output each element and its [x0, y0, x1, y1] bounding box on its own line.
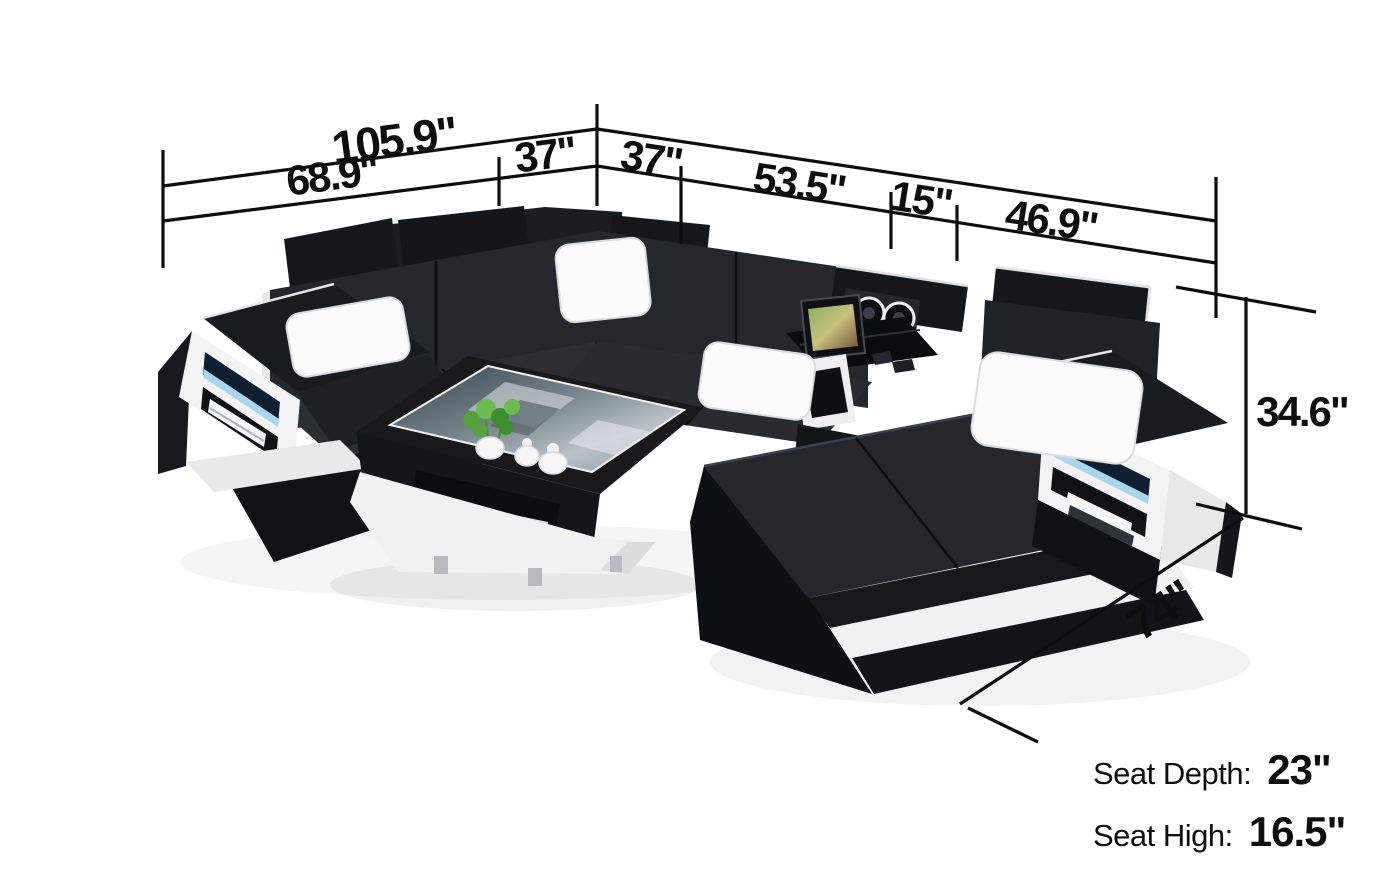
- seat-depth-row: Seat Depth: 23": [1093, 746, 1345, 794]
- seat-specs: Seat Depth: 23" Seat High: 16.5": [1093, 746, 1345, 870]
- pillow-right: [697, 341, 817, 422]
- tablet-screen: [808, 304, 858, 351]
- seat-depth-value: 23": [1267, 746, 1331, 794]
- dim-back-height-label: 34.6": [1256, 391, 1348, 433]
- seat-height-label: Seat High:: [1093, 818, 1233, 854]
- table-chrome-foot-1: [434, 556, 448, 574]
- table-vase-1: [515, 446, 539, 466]
- table-chrome-foot-2: [528, 568, 542, 586]
- dim-right-corner-label: 37": [618, 134, 684, 185]
- sofa-scene-canvas: [0, 0, 1400, 875]
- table-vase-2: [539, 452, 567, 474]
- product-dimension-diagram: 105.9" 68.9" 37" 37" 53.5" 15" 46.9" 34.…: [0, 0, 1400, 875]
- tick-chaise-end: [968, 708, 1038, 742]
- sectional-sofa-illustration: [158, 206, 1250, 706]
- dim-console-label: 15": [888, 175, 954, 226]
- seat-height-value: 16.5": [1249, 808, 1346, 856]
- speaker-left-cone: [863, 307, 875, 319]
- pillow-corner: [554, 237, 652, 324]
- dim-left-corner-label: 37": [512, 130, 578, 179]
- right-arm-outer-white: [1160, 470, 1226, 572]
- remote-control-2: [892, 359, 915, 373]
- seat-height-row: Seat High: 16.5": [1093, 808, 1345, 856]
- table-plant-pot: [476, 437, 504, 459]
- left-arm-outer-side: [158, 331, 192, 474]
- table-chrome-foot-3: [610, 556, 622, 572]
- dim-left-section-label: 68.9": [284, 149, 380, 202]
- seat-depth-label: Seat Depth:: [1093, 756, 1251, 792]
